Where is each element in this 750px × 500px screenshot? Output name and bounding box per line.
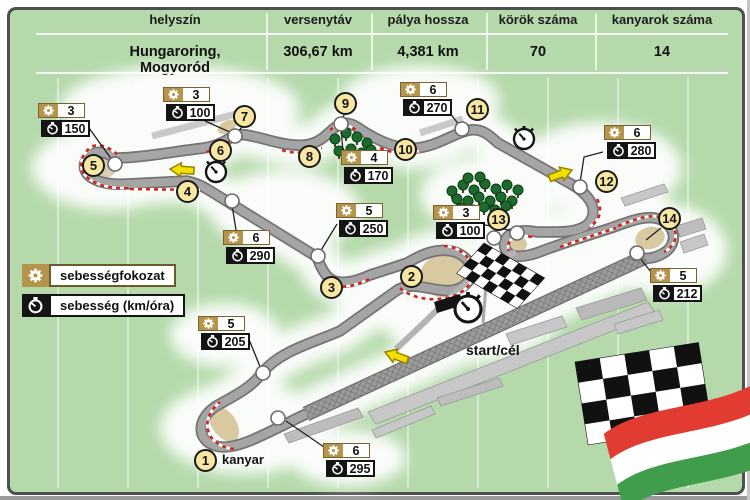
speedometer-icon — [328, 462, 347, 475]
corner-marker-14: 14 — [658, 207, 681, 230]
info-box-turn12: 6 280 — [604, 125, 656, 159]
info-box-turn2-approach: 5 205 — [198, 316, 250, 350]
corner-marker-11: 11 — [466, 98, 489, 121]
corner-marker-10: 10 — [394, 138, 417, 161]
start-finish-label: start/cél — [466, 342, 520, 358]
speedometer-icon — [168, 106, 187, 119]
corner-marker-12: 12 — [595, 170, 618, 193]
column-header: pálya hossza — [373, 12, 483, 27]
speedometer-icon — [203, 335, 222, 348]
corner-marker-2: 2 — [400, 265, 423, 288]
hungaroring-infographic: helyszín versenytáv pálya hossza körök s… — [0, 0, 750, 500]
column-header: helyszín — [95, 12, 255, 27]
corner-word-label: kanyar — [222, 452, 264, 467]
info-box-turn9: 4 170 — [341, 150, 393, 184]
info-box-turn11: 6 270 — [400, 82, 452, 116]
speedometer-icon — [228, 249, 247, 262]
column-separator — [371, 13, 373, 70]
legend-speed-label: sebesség (km/óra) — [49, 294, 185, 317]
corner-marker-8: 8 — [298, 145, 321, 168]
corner-marker-7: 7 — [233, 105, 256, 128]
info-box-turn14: 5 212 — [650, 268, 702, 302]
info-box-turn7: 3 100 — [163, 87, 215, 121]
legend-speed: sebesség (km/óra) — [22, 294, 185, 317]
gear-icon — [434, 206, 453, 219]
speedometer-icon — [438, 224, 457, 237]
corner-marker-6: 6 — [209, 139, 232, 162]
speedometer-icon — [655, 287, 674, 300]
column-header: versenytáv — [268, 12, 368, 27]
column-separator — [595, 13, 597, 70]
stopwatch-icon — [206, 159, 226, 182]
speedometer-icon — [341, 222, 360, 235]
gear-icon — [605, 126, 624, 139]
column-separator — [266, 13, 268, 70]
cell-lap-count: 70 — [488, 44, 588, 60]
cell-corner-count: 14 — [597, 44, 727, 60]
info-box-straight4: 6 290 — [223, 230, 275, 264]
column-header: körök száma — [488, 12, 588, 27]
legend-gear: sebességfokozat — [22, 264, 176, 287]
speedometer-icon — [346, 169, 365, 182]
speedometer-icon — [22, 294, 49, 317]
stopwatch-icon — [514, 126, 534, 149]
legend-gear-label: sebességfokozat — [49, 264, 176, 287]
gear-icon — [324, 444, 343, 457]
gear-icon — [22, 264, 49, 287]
corner-marker-1: 1 — [194, 449, 217, 472]
gear-icon — [651, 269, 670, 282]
corner-marker-3: 3 — [320, 276, 343, 299]
gear-icon — [199, 317, 218, 330]
stopwatch-icon — [455, 292, 481, 322]
info-box-main-straight: 6 295 — [323, 443, 375, 477]
info-box-turn3: 5 250 — [336, 203, 388, 237]
gear-icon — [224, 231, 243, 244]
speedometer-icon — [43, 122, 62, 135]
table-divider — [36, 72, 728, 74]
cell-race-distance: 306,67 km — [268, 44, 368, 60]
table-divider — [36, 33, 728, 35]
info-box-turn5: 3 150 — [38, 103, 90, 137]
corner-marker-13: 13 — [487, 208, 510, 231]
speedometer-icon — [609, 144, 628, 157]
cell-track-length: 4,381 km — [373, 44, 483, 60]
column-header: kanyarok száma — [597, 12, 727, 27]
column-separator — [486, 13, 488, 70]
gear-icon — [401, 83, 420, 96]
corner-marker-5: 5 — [82, 154, 105, 177]
gear-icon — [337, 204, 356, 217]
speedometer-icon — [405, 101, 424, 114]
info-box-turn13: 3 100 — [433, 205, 485, 239]
gear-icon — [342, 151, 361, 164]
corner-marker-4: 4 — [176, 180, 199, 203]
corner-marker-9: 9 — [334, 92, 357, 115]
gear-icon — [39, 104, 58, 117]
gear-icon — [164, 88, 183, 101]
